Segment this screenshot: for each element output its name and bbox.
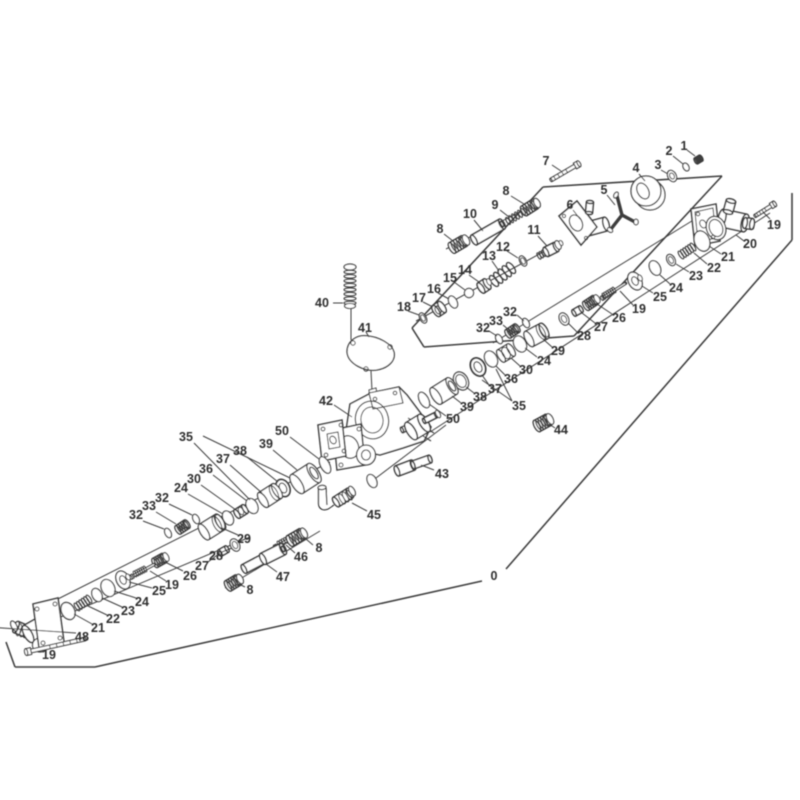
svg-text:15: 15: [443, 271, 457, 285]
svg-text:8: 8: [437, 222, 444, 236]
svg-text:29: 29: [237, 532, 251, 546]
svg-text:25: 25: [152, 584, 166, 598]
svg-text:1: 1: [681, 139, 688, 153]
svg-text:42: 42: [319, 394, 333, 408]
svg-text:19: 19: [165, 578, 179, 592]
svg-text:28: 28: [577, 329, 591, 343]
svg-text:45: 45: [367, 508, 381, 522]
svg-text:35: 35: [512, 399, 526, 413]
svg-text:23: 23: [121, 604, 135, 618]
svg-text:46: 46: [294, 550, 308, 564]
svg-text:30: 30: [187, 472, 201, 486]
svg-text:21: 21: [91, 621, 105, 635]
svg-text:13: 13: [482, 249, 496, 263]
svg-text:30: 30: [519, 363, 533, 377]
svg-text:9: 9: [492, 198, 499, 212]
svg-text:8: 8: [247, 583, 254, 597]
svg-text:2: 2: [666, 144, 673, 158]
svg-text:8: 8: [316, 541, 323, 555]
svg-text:36: 36: [199, 462, 213, 476]
svg-text:38: 38: [233, 444, 247, 458]
svg-text:40: 40: [315, 296, 329, 310]
svg-text:32: 32: [503, 305, 517, 319]
svg-text:33: 33: [489, 314, 503, 328]
svg-text:19: 19: [42, 648, 56, 662]
svg-text:14: 14: [458, 263, 472, 277]
svg-text:32: 32: [129, 508, 143, 522]
svg-text:29: 29: [551, 344, 565, 358]
svg-text:21: 21: [721, 250, 735, 264]
svg-text:20: 20: [743, 237, 757, 251]
svg-text:47: 47: [276, 570, 290, 584]
svg-text:18: 18: [397, 300, 411, 314]
svg-text:39: 39: [259, 437, 273, 451]
svg-text:41: 41: [358, 321, 372, 335]
svg-text:39: 39: [460, 400, 474, 414]
svg-text:36: 36: [504, 372, 518, 386]
svg-text:32: 32: [155, 491, 169, 505]
svg-text:27: 27: [195, 559, 209, 573]
svg-text:48: 48: [75, 630, 89, 644]
svg-text:23: 23: [689, 269, 703, 283]
svg-text:11: 11: [527, 223, 540, 237]
svg-text:27: 27: [594, 320, 608, 334]
svg-text:43: 43: [435, 467, 449, 481]
svg-text:26: 26: [612, 311, 626, 325]
svg-text:17: 17: [412, 291, 426, 305]
svg-text:7: 7: [543, 154, 550, 168]
svg-text:24: 24: [174, 481, 188, 495]
svg-text:16: 16: [427, 282, 441, 296]
svg-text:44: 44: [554, 423, 568, 437]
svg-text:38: 38: [473, 390, 487, 404]
svg-text:12: 12: [496, 240, 510, 254]
svg-text:24: 24: [537, 354, 551, 368]
svg-text:26: 26: [183, 569, 197, 583]
svg-text:19: 19: [767, 218, 781, 232]
svg-text:22: 22: [106, 612, 120, 626]
svg-text:24: 24: [669, 281, 683, 295]
svg-text:37: 37: [488, 382, 502, 396]
svg-text:28: 28: [209, 549, 223, 563]
svg-text:4: 4: [633, 161, 640, 175]
svg-text:22: 22: [707, 261, 721, 275]
svg-text:24: 24: [135, 595, 149, 609]
svg-text:5: 5: [601, 183, 608, 197]
svg-text:19: 19: [632, 302, 646, 316]
svg-text:50: 50: [275, 424, 289, 438]
svg-text:25: 25: [653, 290, 667, 304]
svg-text:50: 50: [446, 412, 460, 426]
svg-text:0: 0: [491, 569, 498, 583]
svg-text:33: 33: [142, 499, 156, 513]
svg-text:35: 35: [179, 430, 193, 444]
svg-text:6: 6: [567, 198, 574, 212]
svg-text:10: 10: [463, 207, 477, 221]
svg-text:32: 32: [476, 321, 490, 335]
svg-text:3: 3: [655, 158, 662, 172]
svg-text:8: 8: [503, 184, 510, 198]
svg-text:37: 37: [216, 452, 230, 466]
